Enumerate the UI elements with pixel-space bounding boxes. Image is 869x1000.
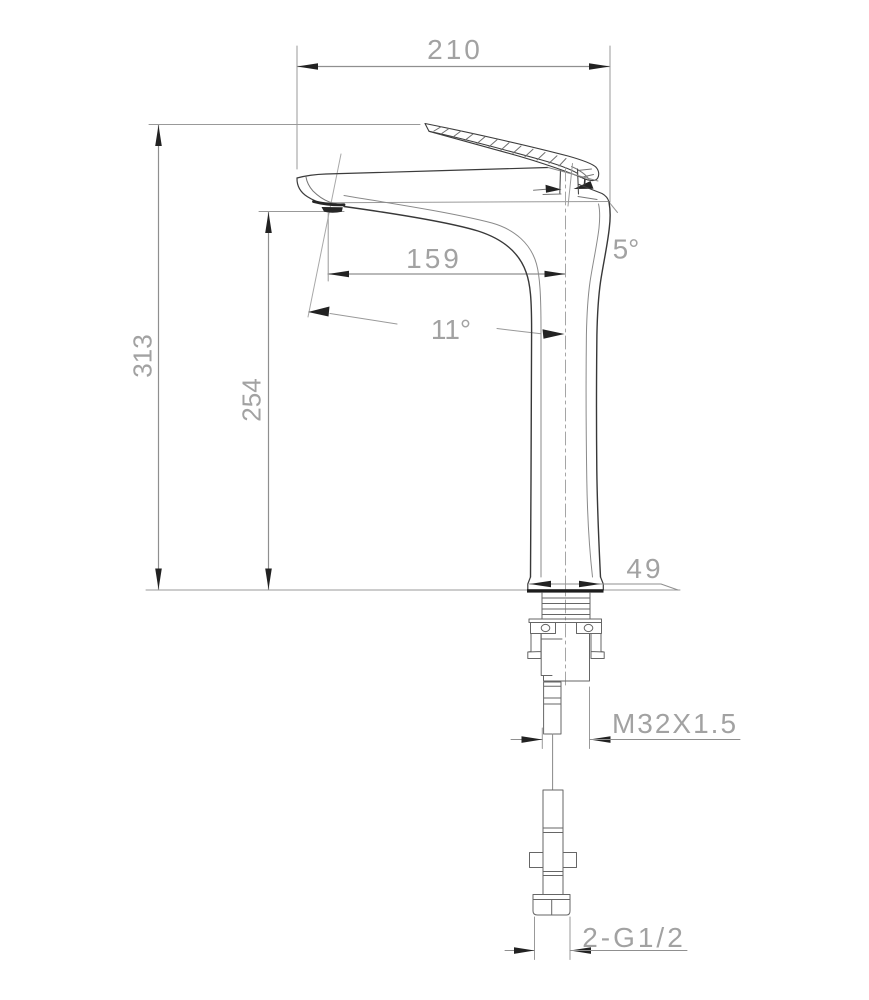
svg-text:254: 254 <box>237 378 267 421</box>
svg-text:M32X1.5: M32X1.5 <box>612 708 738 739</box>
svg-text:313: 313 <box>128 334 158 377</box>
svg-text:159: 159 <box>406 243 462 274</box>
svg-text:49: 49 <box>626 553 663 584</box>
svg-text:210: 210 <box>427 34 483 65</box>
svg-text:2-G1/2: 2-G1/2 <box>582 922 686 953</box>
svg-text:5°: 5° <box>613 234 640 265</box>
svg-text:11°: 11° <box>431 314 471 345</box>
